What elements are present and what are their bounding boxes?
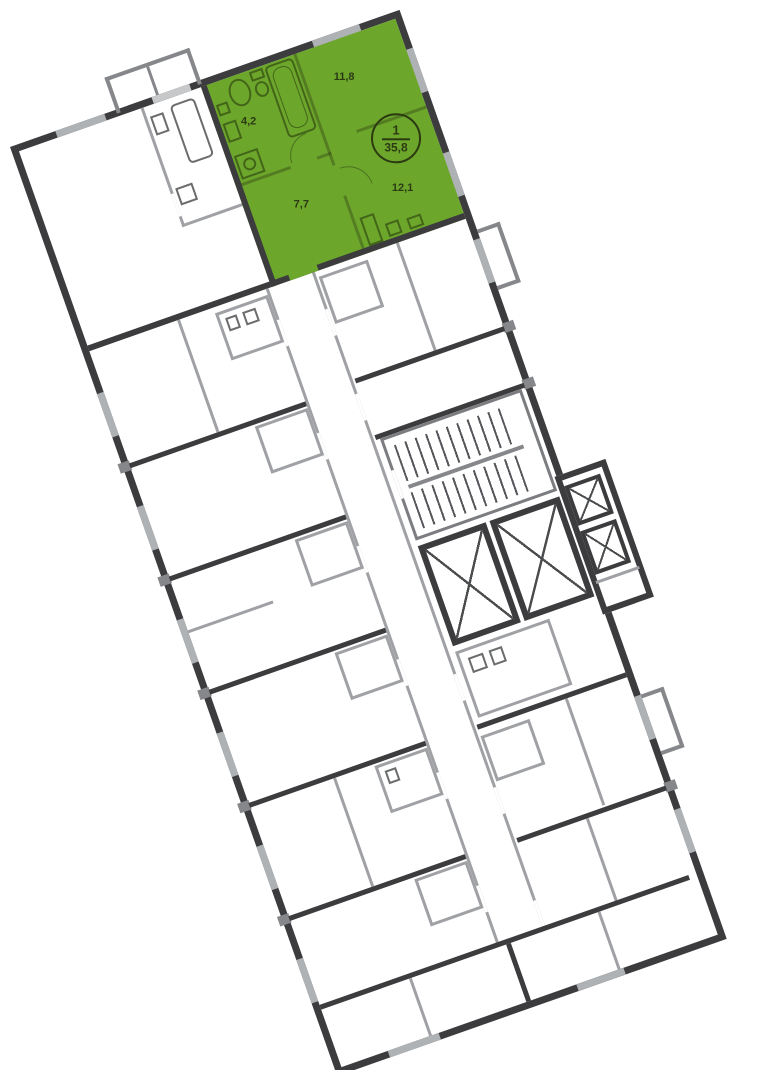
unit-number: 1 — [392, 123, 399, 137]
stove-icon — [406, 213, 424, 229]
partition-wall — [328, 152, 335, 166]
floor-plan-canvas: 4,2 11,8 7,7 12,1 1 35,8 — [0, 0, 760, 1070]
kitchen-sink-icon — [385, 219, 403, 237]
door-arc — [283, 133, 314, 164]
sink-icon — [225, 76, 255, 110]
floor-plan: 4,2 11,8 7,7 12,1 1 35,8 — [10, 10, 727, 1070]
cabinet-icon — [216, 101, 231, 116]
toilet-tank-icon — [249, 68, 266, 82]
unit-area-badge: 1 35,8 — [371, 113, 421, 163]
cabinet-icon — [222, 119, 242, 143]
room-area-label: 12,1 — [392, 182, 413, 194]
door-arc — [340, 159, 373, 192]
room-area-label: 7,7 — [294, 199, 309, 211]
room-area-label: 11,8 — [334, 71, 355, 83]
unit-total-area: 35,8 — [384, 141, 407, 154]
room-area-label: 4,2 — [241, 115, 256, 127]
kitchen-unit-icon — [359, 213, 383, 246]
